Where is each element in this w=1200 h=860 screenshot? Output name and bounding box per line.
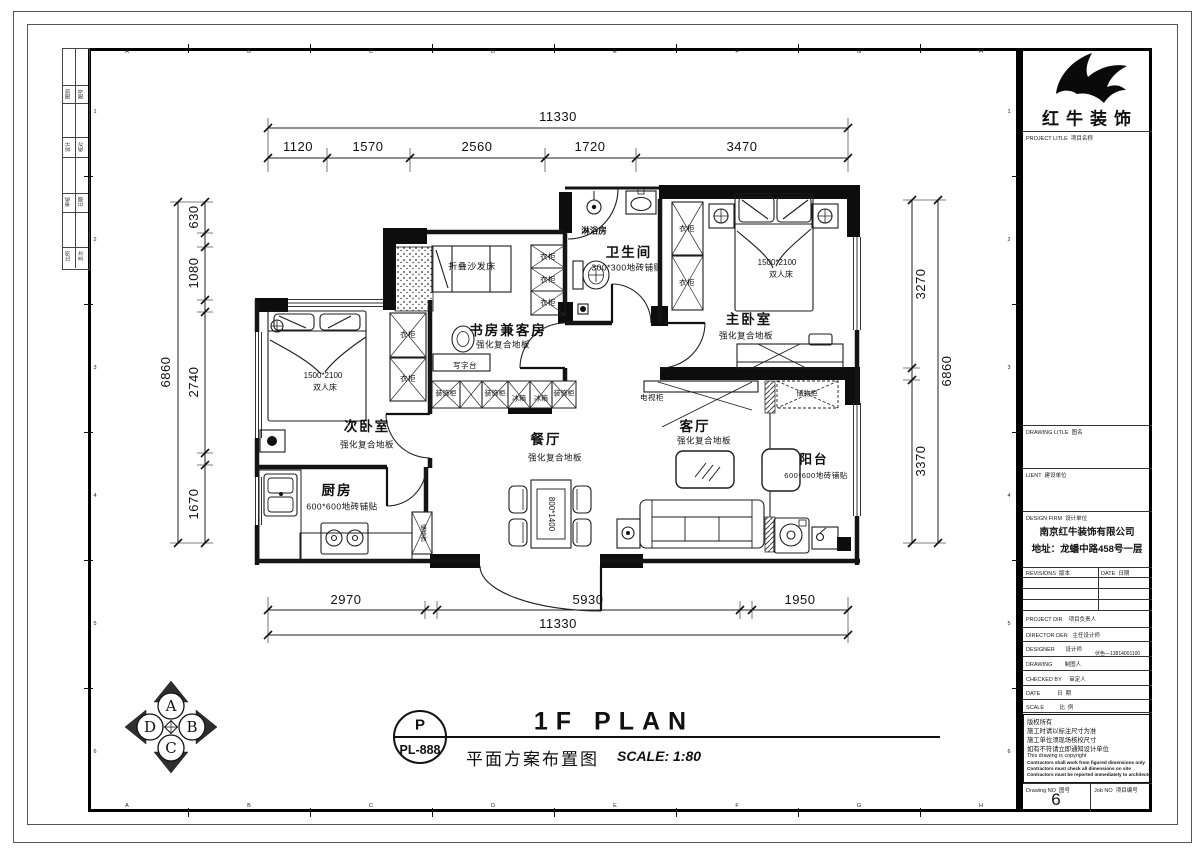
grid-tick (84, 304, 93, 305)
grid-ref-letter: F (735, 803, 738, 809)
kitchen-cabinet-label: 储物柜 (419, 524, 425, 542)
bed-type-label: 双人床 (769, 271, 793, 279)
grid-tick (84, 560, 93, 561)
grid-ref-letter: D (491, 803, 495, 809)
compass-icon (125, 681, 217, 773)
client-label: LIENT 建设单位 (1026, 471, 1067, 479)
grid-tick (1012, 176, 1021, 177)
grid-ref-number: 5 (93, 621, 96, 627)
grid-ref-letter: G (857, 49, 861, 55)
wardrobe-label: 衣柜 (679, 225, 695, 233)
design-firm-name: 南京红牛装饰有限公司 (1039, 524, 1134, 538)
grid-tick (1012, 304, 1021, 305)
grid-tick (432, 44, 433, 53)
job-no-label: Job NO 项目编号 (1094, 786, 1138, 794)
room-label-kitchen: 厨房 (322, 484, 353, 498)
drawing-title-label: DRAWING LITLE 图名 (1026, 428, 1083, 436)
grid-ref-letter: A (125, 803, 129, 809)
wardrobe-label: 衣柜 (400, 331, 416, 339)
dim-right-seg: 3370 (914, 446, 928, 477)
dim-top-seg: 1120 (283, 140, 313, 154)
grid-ref-number: 3 (1007, 365, 1010, 371)
grid-tick (920, 808, 921, 817)
grid-ref-number: 3 (93, 365, 96, 371)
room-floor-second: 强化复合地板 (340, 441, 394, 450)
fridge-label: 冰箱 (534, 395, 548, 402)
date-row-label: DATE 日 期 (1026, 689, 1071, 697)
grid-ref-letter: G (857, 803, 861, 809)
room-label-shower: 淋浴房 (581, 227, 607, 236)
copyright-line: Contractors must be reported immediately… (1027, 772, 1151, 777)
drawing-no-value: 6 (1051, 790, 1060, 810)
dim-bottom-seg: 2970 (331, 593, 362, 607)
dim-left-seg: 1670 (187, 489, 201, 520)
grid-tick (188, 44, 189, 53)
revisions-table-divider (1098, 567, 1099, 610)
room-label-second: 次卧室 (344, 420, 391, 434)
drawing-by-label: DRAWING 制图人 (1026, 660, 1081, 668)
grid-ref-letter: F (735, 49, 738, 55)
grid-tick (798, 44, 799, 53)
grid-tick (554, 44, 555, 53)
plan-title-cn: 平面方案布置图 (466, 745, 599, 770)
storage-cabinet-label: 储物柜 (797, 390, 818, 397)
bed-size-label: 1500*2100 (304, 372, 343, 380)
sofa-bed-label: 折叠沙发床 (448, 262, 496, 271)
grid-tick (310, 44, 311, 53)
copyright-line: Contractors shall work from figured dime… (1027, 760, 1145, 765)
project-title-label: PROJECT LITLE 项目名称 (1026, 134, 1093, 142)
revisions-label: REVISIONS 版本 (1026, 569, 1070, 577)
table-size-label: 800*1400 (547, 497, 555, 531)
grid-ref-number: 2 (1007, 237, 1010, 243)
dim-top-seg: 1570 (353, 140, 384, 154)
dim-bottom-seg: 5930 (573, 593, 604, 607)
grid-tick (310, 808, 311, 817)
deco-cabinet-label: 装饰柜 (436, 390, 457, 397)
copyright-line: 施工单位须现场核校尺寸 (1027, 735, 1096, 744)
grid-ref-number: 4 (1007, 493, 1010, 499)
title-tag-number: PL-888 (400, 743, 441, 757)
compass-letter-bottom: C (165, 739, 176, 757)
room-floor-kitchen: 600*600地砖铺贴 (306, 503, 377, 512)
wardrobe-label: 衣柜 (540, 253, 556, 261)
title-tag-letter: P (415, 717, 425, 734)
plan-title-en: 1F PLAN (534, 708, 694, 737)
grid-ref-number: 2 (93, 237, 96, 243)
company-name: 红牛装饰 (1042, 105, 1138, 130)
tv-cabinet-label: 电视柜 (640, 394, 664, 402)
company-logo-icon (1056, 53, 1127, 103)
wardrobe-label: 衣柜 (540, 299, 556, 307)
room-floor-living: 强化复合地板 (677, 437, 731, 446)
room-floor-master: 强化复合地板 (719, 332, 773, 341)
grid-tick (920, 44, 921, 53)
wardrobe-label: 衣柜 (679, 279, 695, 287)
dim-top-seg: 3470 (727, 140, 758, 154)
grid-ref-letter: E (613, 803, 617, 809)
desk-label: 写字台 (453, 362, 477, 370)
grid-ref-letter: E (613, 49, 617, 55)
scale-row-label: SCALE 比 例 (1026, 703, 1073, 711)
wardrobe-label: 衣柜 (400, 375, 416, 383)
copyright-line: This drawing is copyright (1027, 753, 1086, 759)
dim-right-total: 6860 (940, 356, 954, 387)
grid-tick (554, 808, 555, 817)
dim-left-seg: 2740 (187, 367, 201, 398)
wardrobe-label: 衣柜 (540, 276, 556, 284)
deco-cabinet-label: 装饰柜 (485, 390, 506, 397)
compass-letter-top: A (166, 697, 177, 715)
room-floor-study: 强化复合地板 (476, 341, 530, 350)
copyright-line: 如有不符请立即通知设计单位 (1027, 744, 1109, 753)
grid-tick (84, 432, 93, 433)
dim-top-total: 11330 (539, 110, 577, 124)
checked-by-label: CHECKED BY 审定人 (1026, 675, 1086, 683)
room-label-balcony: 阳台 (799, 453, 828, 466)
grid-ref-letter: H (979, 49, 983, 55)
room-label-master: 主卧室 (726, 313, 773, 327)
room-floor-bath: 300*300地砖铺贴 (591, 264, 662, 273)
deco-cabinet-label: 装饰柜 (554, 390, 575, 397)
grid-ref-number: 1 (93, 109, 96, 115)
design-firm-address: 地址：龙蟠中路458号一层 (1032, 541, 1143, 555)
dim-left-seg: 1080 (187, 258, 201, 289)
plan-scale: SCALE: 1:80 (617, 748, 701, 764)
grid-ref-number: 5 (1007, 621, 1010, 627)
dim-bottom-total: 11330 (539, 617, 577, 631)
grid-tick (432, 808, 433, 817)
grid-ref-letter: C (369, 49, 373, 55)
dim-left-total: 6860 (159, 357, 173, 388)
date-col-label: DATE 日期 (1101, 569, 1129, 577)
grid-ref-letter: B (247, 49, 251, 55)
copyright-line: Contractors must check all dimensions on… (1027, 766, 1131, 771)
grid-tick (188, 808, 189, 817)
copyright-line: 施工时请以标注尺寸为准 (1027, 726, 1096, 735)
drawing-no-label: Drawing NO 图号 (1026, 786, 1070, 794)
room-label-dining: 餐厅 (531, 433, 562, 447)
project-dir-label: PROJECT DIR 项目负责人 (1026, 615, 1096, 623)
director-label: DIRECTOR DER 主任设计师 (1026, 631, 1100, 639)
grid-ref-number: 6 (1007, 749, 1010, 755)
room-label-living: 客厅 (680, 420, 711, 434)
grid-ref-number: 1 (1007, 109, 1010, 115)
design-firm-label: DESIGN FIRM 设计单位 (1026, 514, 1087, 522)
designer-label: DESIGNER 设计师 (1026, 645, 1082, 653)
dim-top-seg: 1720 (575, 140, 606, 154)
room-floor-dining: 强化复合地板 (528, 454, 582, 463)
dim-right-seg: 3270 (914, 269, 928, 300)
compass-letter-left: D (144, 718, 156, 736)
grid-ref-letter: A (125, 49, 129, 55)
dim-bottom-seg: 1950 (785, 593, 816, 607)
grid-ref-number: 6 (93, 749, 96, 755)
grid-tick (676, 44, 677, 53)
room-floor-balcony: 600*600地砖铺贴 (784, 472, 847, 480)
grid-tick (84, 176, 93, 177)
drawing-sheet: 图别 图号 设计 校对 审核 日期 比例 页次 (0, 0, 1200, 860)
grid-tick (798, 808, 799, 817)
dim-top-seg: 2560 (462, 140, 493, 154)
grid-tick (84, 688, 93, 689)
designer-contact: 伏色—13814001100 (1095, 650, 1140, 657)
grid-tick (1012, 688, 1021, 689)
grid-tick (1012, 432, 1021, 433)
fridge-label: 冰箱 (512, 395, 526, 402)
grid-ref-letter: B (247, 803, 251, 809)
compass-letter-right: B (186, 718, 197, 736)
drawing-no-divider (1090, 783, 1091, 812)
bed-type-label: 双人床 (313, 384, 337, 392)
room-label-bath: 卫生间 (606, 246, 653, 260)
grid-tick (676, 808, 677, 817)
bed-size-label: 1500*2100 (758, 259, 797, 267)
copyright-line: 版权所有 (1027, 717, 1052, 726)
room-label-study: 书房兼客房 (469, 324, 547, 338)
grid-tick (1012, 560, 1021, 561)
grid-ref-number: 4 (93, 493, 96, 499)
dim-left-seg: 630 (187, 205, 201, 228)
grid-ref-letter: D (491, 49, 495, 55)
grid-ref-letter: C (369, 803, 373, 809)
grid-ref-letter: H (979, 803, 983, 809)
